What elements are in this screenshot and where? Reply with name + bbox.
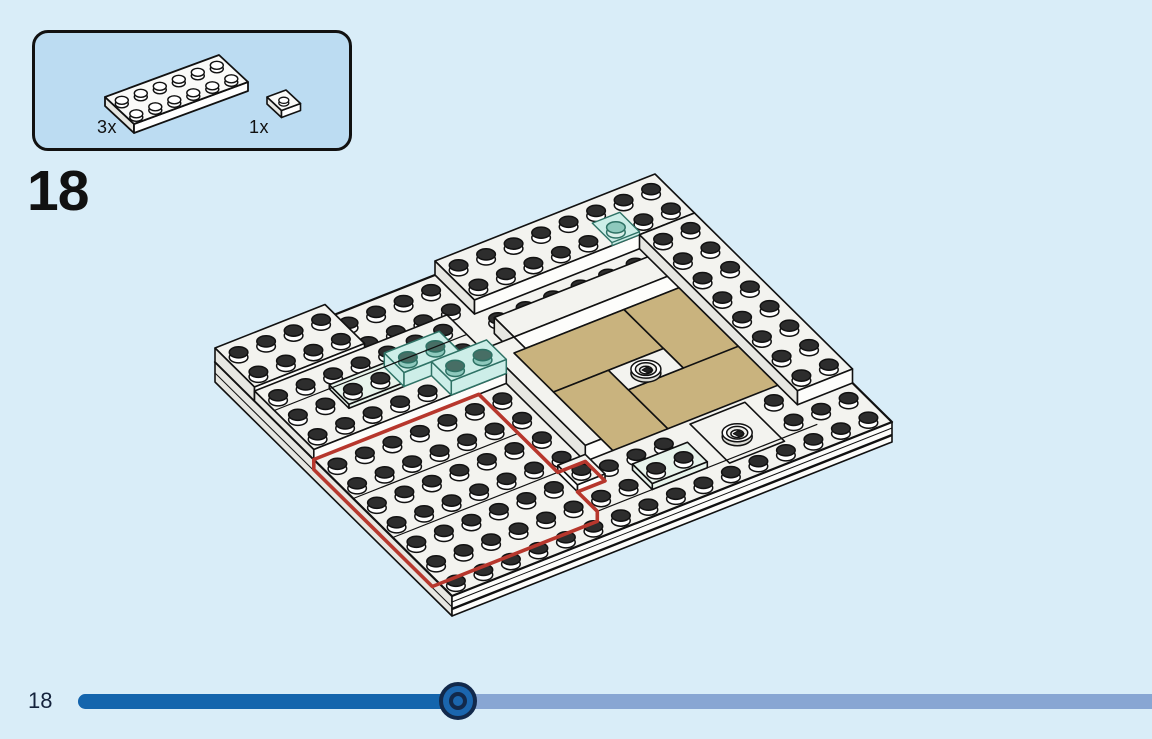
step-illustration [0,0,1152,739]
progress-slider-handle-inner [449,692,467,710]
progress-slider-fill [78,694,458,709]
page-number-label: 18 [28,688,52,714]
progress-slider-handle[interactable] [439,682,477,720]
page-background: { "parts_callout": { "parts": [ { "name"… [0,0,1152,739]
progress-slider-track[interactable] [78,694,1152,709]
